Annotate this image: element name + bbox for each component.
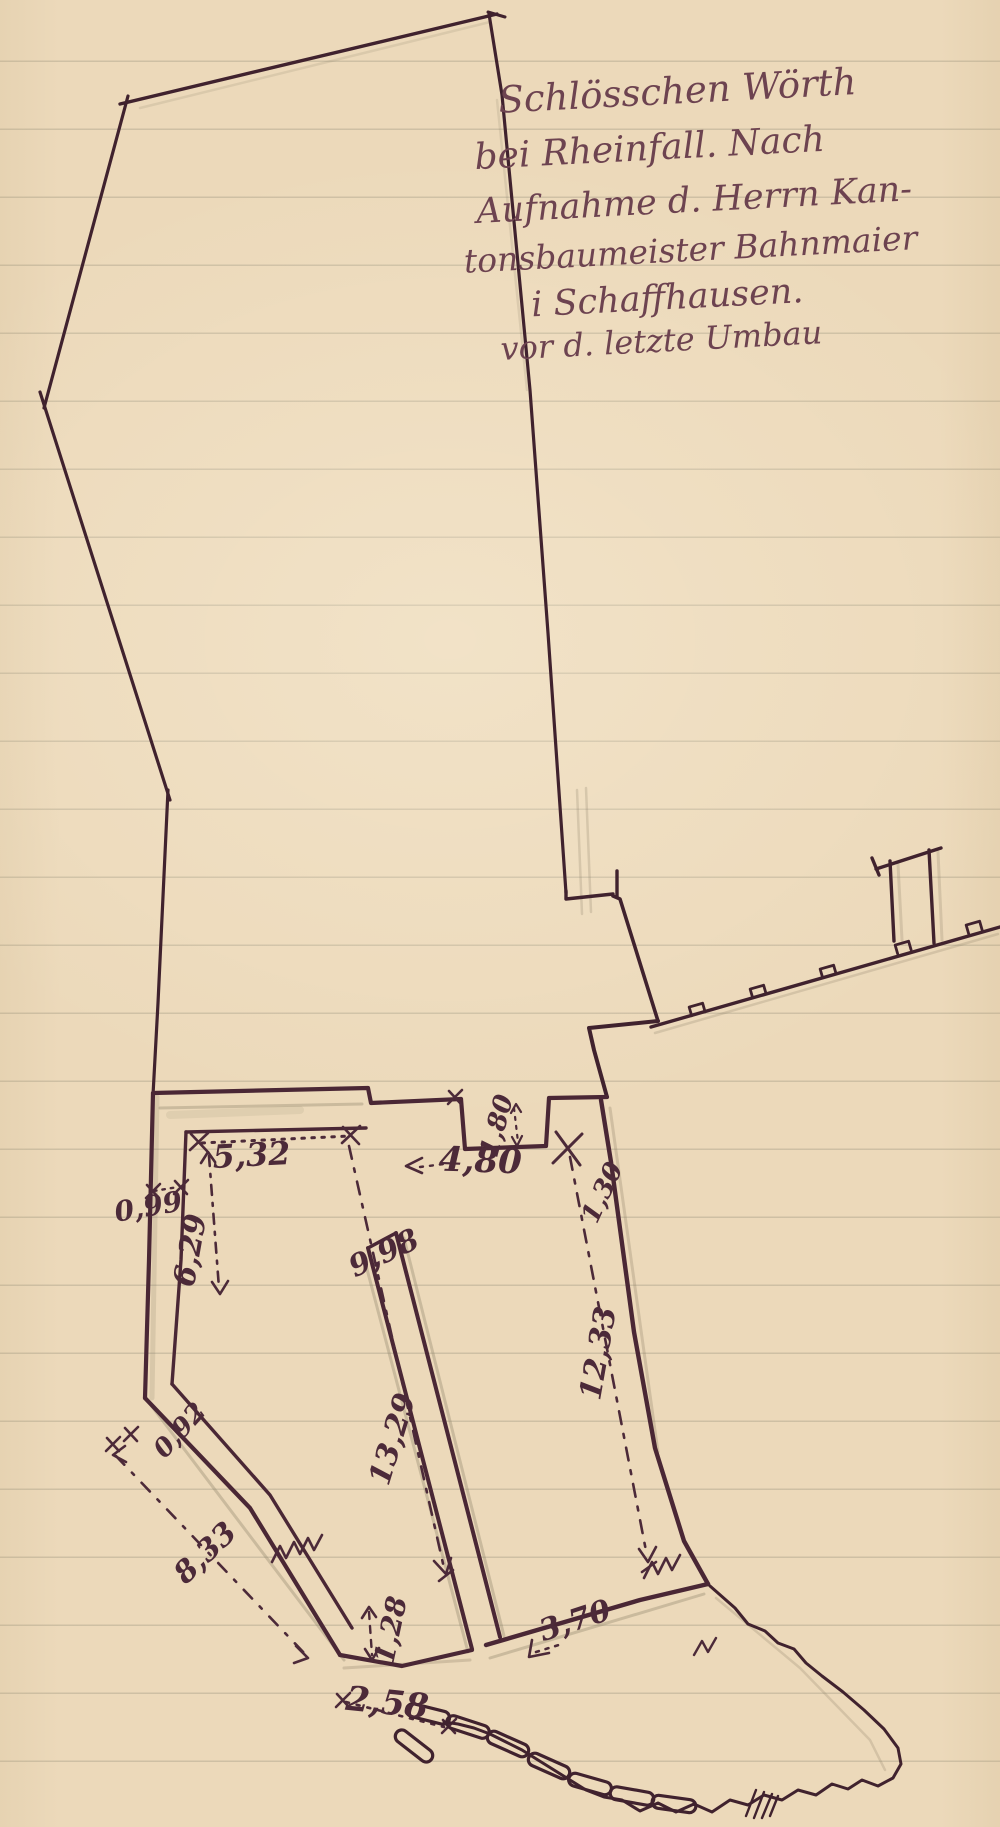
shore-wall [589,1021,658,1097]
pier-left-rail [890,861,894,941]
cross-mark [124,1427,138,1441]
pier-right-rail [929,850,934,943]
cross-mark-large [553,1132,582,1165]
measurement-0-92: 0,92 [148,1397,213,1464]
ruled-paper-sheet: 5,32 4,80 1,80 0,99 6,29 9,98 1,30 12,33… [0,0,1000,1827]
pencil-top-wall [160,1104,362,1108]
measurement-3-70: 3,70 [535,1593,615,1649]
rock-outline [444,1586,901,1812]
measurement-12-33: 12,33 [573,1304,624,1403]
pencil-pier [898,852,942,940]
pencil-guide-1 [577,790,582,914]
island-left-lower [153,790,168,1095]
pencil-rocks [716,1598,885,1770]
chain-link [393,1727,436,1764]
hatch-corner [694,1638,716,1655]
wall-top-outer [153,1088,461,1103]
wall-bottom [340,1650,472,1666]
wall-top-inner [186,1128,366,1132]
pencil-shore [655,934,998,1033]
cross-mark [106,1437,120,1451]
measurement-5-32: 5,32 [212,1134,292,1176]
pier-top-tick [872,858,879,875]
arrowhead-left [406,1158,422,1173]
measurement-2-58: 2,58 [343,1679,431,1728]
chain-links [393,1702,697,1813]
pier-bridge [872,848,941,943]
island-left-mid [40,392,170,800]
title-line-1: Schlösschen Wörth [497,60,857,122]
measurement-6-29: 6,29 [167,1211,214,1289]
pencil-smudge [170,1110,300,1115]
title-line-2: bei Rheinfall. Nach [473,119,825,178]
shore-posts [689,921,982,1016]
island-outline [40,12,658,1095]
measurement-1-28: 1,28 [367,1593,413,1667]
survey-sketch: 5,32 4,80 1,80 0,99 6,29 9,98 1,30 12,33… [0,0,1000,1827]
rock-shoreline [393,1586,901,1818]
island-left-upper [44,96,128,408]
chain-link [609,1786,655,1806]
measurement-8-33: 8,33 [166,1515,244,1592]
rock-shading [746,1790,778,1818]
pencil-guide-2 [586,788,591,912]
island-top-edge [120,14,497,104]
arrowhead-down [212,1281,228,1294]
shore-line [651,927,1000,1027]
island-jog-diagonal [613,896,658,1021]
pencil-top-edge [140,22,490,108]
measurement-0-99: 0,99 [112,1184,185,1228]
